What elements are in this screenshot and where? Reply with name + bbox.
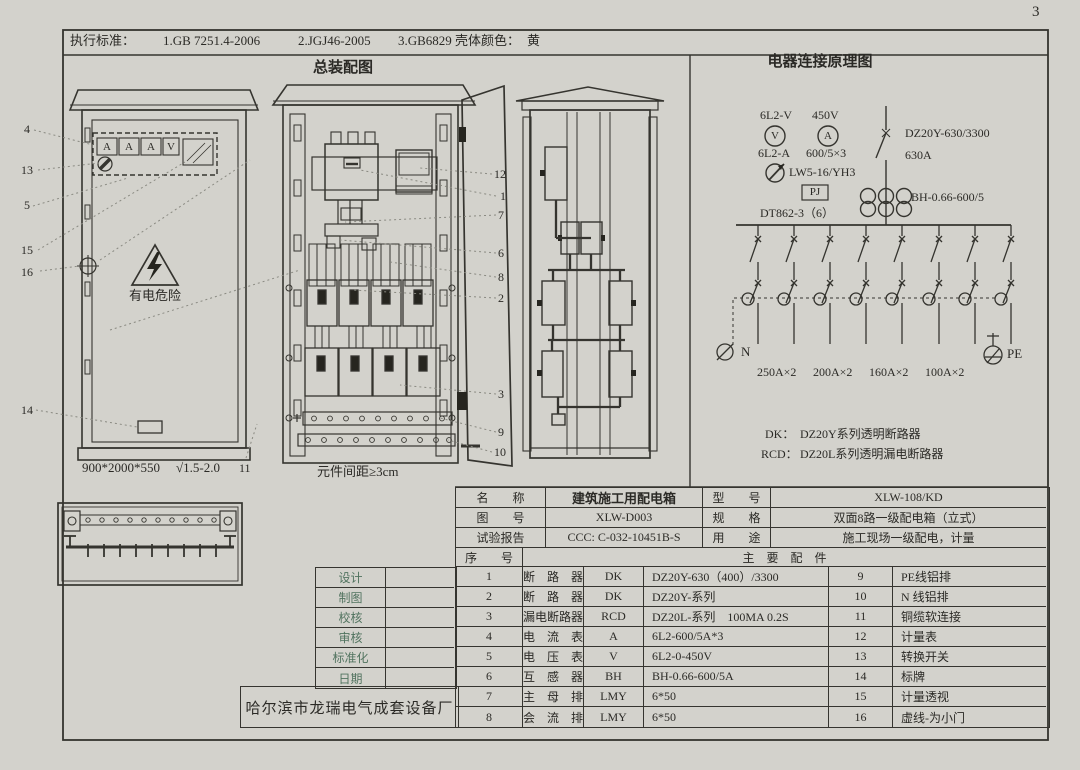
name-value: 建筑施工用配电箱: [546, 488, 703, 508]
part-no: 5: [456, 647, 523, 667]
part-name2: 计量表: [893, 627, 1046, 647]
meter-box-label: PJ: [810, 186, 820, 198]
shell-color-value: 黄: [527, 34, 540, 48]
signature-label-date: 日期: [316, 668, 386, 688]
meter-a1: A: [103, 141, 111, 153]
part-name: 漏电断路器: [523, 607, 584, 627]
signature-value: [386, 628, 454, 648]
cabinet-front-view: [70, 90, 258, 460]
finish-spec: √1.5-2.0: [176, 461, 220, 475]
busbar-detail: [58, 503, 242, 585]
neutral-label: N: [741, 345, 750, 359]
meter-a3: A: [147, 141, 155, 153]
parts-header-row: 序 号 主 要 配 件: [456, 548, 1049, 567]
part-code: LMY: [584, 687, 644, 707]
part-no: 8: [456, 707, 523, 727]
part-code: RCD: [584, 607, 644, 627]
meter-a2: A: [125, 141, 133, 153]
part-no2: 10: [829, 587, 893, 607]
part-name: 断 路 器: [523, 587, 584, 607]
note-dk-key: DK：: [765, 428, 794, 441]
branch-rating-3: 160A×2: [869, 366, 908, 379]
energy-meter-model: DT862-3（6）: [760, 207, 834, 220]
exec-standard-label: 执行标准：: [70, 34, 135, 48]
callout-5: 5: [24, 199, 30, 212]
part-spec: 6L2-0-450V: [644, 647, 829, 667]
part-code: DK: [584, 567, 644, 587]
drawing-no-value: XLW-D003: [546, 508, 703, 528]
spec-value: 双面8路一级配电箱（立式）: [771, 508, 1046, 528]
part-no2: 15: [829, 687, 893, 707]
main-breaker-model: DZ20Y-630/3300: [905, 127, 990, 140]
callout-13: 13: [21, 164, 33, 177]
part-spec: DZ20Y-630（400）/3300: [644, 567, 829, 587]
model-value: XLW-108/KD: [771, 488, 1046, 508]
part-name2: 铜缆软连接: [893, 607, 1046, 627]
parts-table: 1 断 路 器 DK DZ20Y-630（400）/3300 9 PE线铝排 2…: [456, 567, 1049, 727]
signature-label-review: 审核: [316, 628, 386, 648]
callout-7: 7: [498, 209, 504, 222]
ct-model: BH-0.66-600/5: [911, 191, 984, 204]
callout-4: 4: [24, 123, 30, 136]
part-no: 6: [456, 667, 523, 687]
part-no: 4: [456, 627, 523, 647]
signature-value: [386, 648, 454, 668]
part-name2: N 线铝排: [893, 587, 1046, 607]
part-name: 主 母 排: [523, 687, 584, 707]
main-breaker-current: 630A: [905, 149, 932, 162]
signature-row: 制图: [316, 588, 456, 608]
part-name2: 转换开关: [893, 647, 1046, 667]
part-name2: 虚线-为小门: [893, 707, 1046, 727]
signature-value: [386, 568, 454, 588]
branch-rating-1: 250A×2: [757, 366, 796, 379]
callout-11: 11: [239, 462, 251, 475]
signature-label-design: 设计: [316, 568, 386, 588]
drawing-sheet: 3 执行标准： 1.GB 7251.4-2006 2.JGJ46-2005 3.…: [0, 0, 1080, 770]
voltmeter-model: 6L2-V: [760, 109, 792, 122]
note-dk-value: DZ20Y系列透明断路器: [800, 428, 921, 441]
report-label: 试验报告: [456, 528, 546, 548]
part-code: BH: [584, 667, 644, 687]
part-spec: DZ20Y-系列: [644, 587, 829, 607]
callout-15: 15: [21, 244, 33, 257]
schematic-title: 电器连接原理图: [767, 54, 872, 71]
voltmeter-symbol: V: [771, 130, 779, 142]
part-name: 会 流 排: [523, 707, 584, 727]
callout-8: 8: [498, 271, 504, 284]
part-no2: 13: [829, 647, 893, 667]
part-name: 电 流 表: [523, 627, 584, 647]
part-no2: 9: [829, 567, 893, 587]
part-name2: PE线铝排: [893, 567, 1046, 587]
signature-row: 校核: [316, 608, 456, 628]
signature-row: 日期: [316, 668, 456, 688]
part-spec: 6L2-600/5A*3: [644, 627, 829, 647]
part-spec: 6*50: [644, 687, 829, 707]
callout-6: 6: [498, 247, 504, 260]
switch-model: LW5-16/YH3: [789, 166, 855, 179]
standard-1: 1.GB 7251.4-2006: [163, 34, 260, 48]
part-no: 3: [456, 607, 523, 627]
part-spec: BH-0.66-600/5A: [644, 667, 829, 687]
warning-text: 有电危险: [129, 289, 181, 303]
part-code: A: [584, 627, 644, 647]
signature-row: 审核: [316, 628, 456, 648]
title-block-header: 名 称 建筑施工用配电箱 型 号 XLW-108/KD 图 号 XLW-D003…: [456, 488, 1049, 548]
part-spec: 6*50: [644, 707, 829, 727]
ct-ratio: 600/5×3: [806, 147, 846, 160]
parts-label: 主 要 配 件: [523, 548, 1046, 567]
part-no: 7: [456, 687, 523, 707]
spacing-note: 元件间距≥3cm: [317, 465, 399, 479]
signature-label-standardize: 标准化: [316, 648, 386, 668]
model-label: 型 号: [703, 488, 771, 508]
part-name: 互 感 器: [523, 667, 584, 687]
part-name: 电 压 表: [523, 647, 584, 667]
callout-2: 2: [498, 292, 504, 305]
callout-10: 10: [494, 446, 506, 459]
use-label: 用 途: [703, 528, 771, 548]
part-no: 1: [456, 567, 523, 587]
part-code: DK: [584, 587, 644, 607]
part-no2: 14: [829, 667, 893, 687]
standard-2: 2.JGJ46-2005: [298, 34, 371, 48]
signature-row: 标准化: [316, 648, 456, 668]
part-name2: 计量透视: [893, 687, 1046, 707]
page-number: 3: [1032, 4, 1040, 21]
branch-rating-4: 100A×2: [925, 366, 964, 379]
earth-label: PE: [1007, 347, 1022, 361]
part-no2: 16: [829, 707, 893, 727]
signature-value: [386, 668, 454, 688]
part-no: 2: [456, 587, 523, 607]
note-rcd-value: DZ20L系列透明漏电断路器: [800, 448, 943, 461]
drawing-no-label: 图 号: [456, 508, 546, 528]
part-no2: 11: [829, 607, 893, 627]
standard-3: 3.GB6829: [398, 34, 452, 48]
signature-label-draft: 制图: [316, 588, 386, 608]
part-spec: DZ20L-系列 100MA 0.2S: [644, 607, 829, 627]
callout-12: 12: [494, 168, 506, 181]
callout-9: 9: [498, 426, 504, 439]
branch-rating-2: 200A×2: [813, 366, 852, 379]
manufacturer-box: 哈尔滨市龙瑞电气成套设备厂: [240, 686, 459, 728]
part-code: V: [584, 647, 644, 667]
title-block-table: 名 称 建筑施工用配电箱 型 号 XLW-108/KD 图 号 XLW-D003…: [455, 487, 1050, 728]
part-name2: 标牌: [893, 667, 1046, 687]
callout-1: 1: [500, 190, 506, 203]
callout-14: 14: [21, 404, 33, 417]
part-code: LMY: [584, 707, 644, 727]
spec-label: 规 格: [703, 508, 771, 528]
part-name: 断 路 器: [523, 567, 584, 587]
voltage-label: 450V: [812, 109, 839, 122]
signature-row: 设计: [316, 568, 456, 588]
schematic-feeders: [717, 225, 1014, 364]
part-no2: 12: [829, 627, 893, 647]
assembly-title: 总装配图: [313, 60, 373, 77]
signature-label-check: 校核: [316, 608, 386, 628]
ammeter-symbol: A: [824, 130, 832, 142]
serial-label: 序 号: [456, 548, 523, 567]
report-value: CCC: C-032-10451B-S: [546, 528, 703, 548]
signature-table: 设计 制图 校核 审核 标准化 日期: [315, 567, 457, 689]
callout-16: 16: [21, 266, 33, 279]
signature-value: [386, 608, 454, 628]
note-rcd-key: RCD：: [761, 448, 798, 461]
signature-value: [386, 588, 454, 608]
manufacturer-name: 哈尔滨市龙瑞电气成套设备厂: [245, 697, 453, 718]
shell-color-label: 壳体颜色：: [455, 34, 520, 48]
cabinet-size: 900*2000*550: [82, 461, 160, 475]
ammeter-model: 6L2-A: [758, 147, 790, 160]
callout-leaders: [33, 130, 496, 458]
cabinet-side-view: [516, 87, 664, 458]
cabinet-internal-view: [273, 85, 512, 466]
use-value: 施工现场一级配电，计量: [771, 528, 1046, 548]
name-label: 名 称: [456, 488, 546, 508]
callout-3: 3: [498, 388, 504, 401]
meter-v: V: [167, 141, 175, 153]
